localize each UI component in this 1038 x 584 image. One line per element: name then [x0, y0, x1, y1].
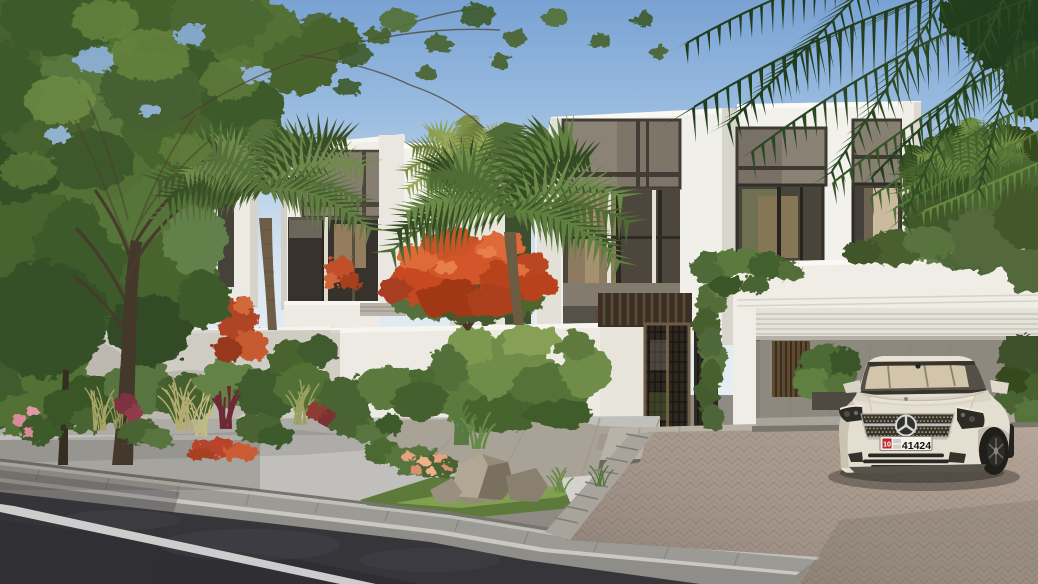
svg-text:41424: 41424: [902, 440, 931, 452]
svg-text:10: 10: [883, 442, 891, 449]
